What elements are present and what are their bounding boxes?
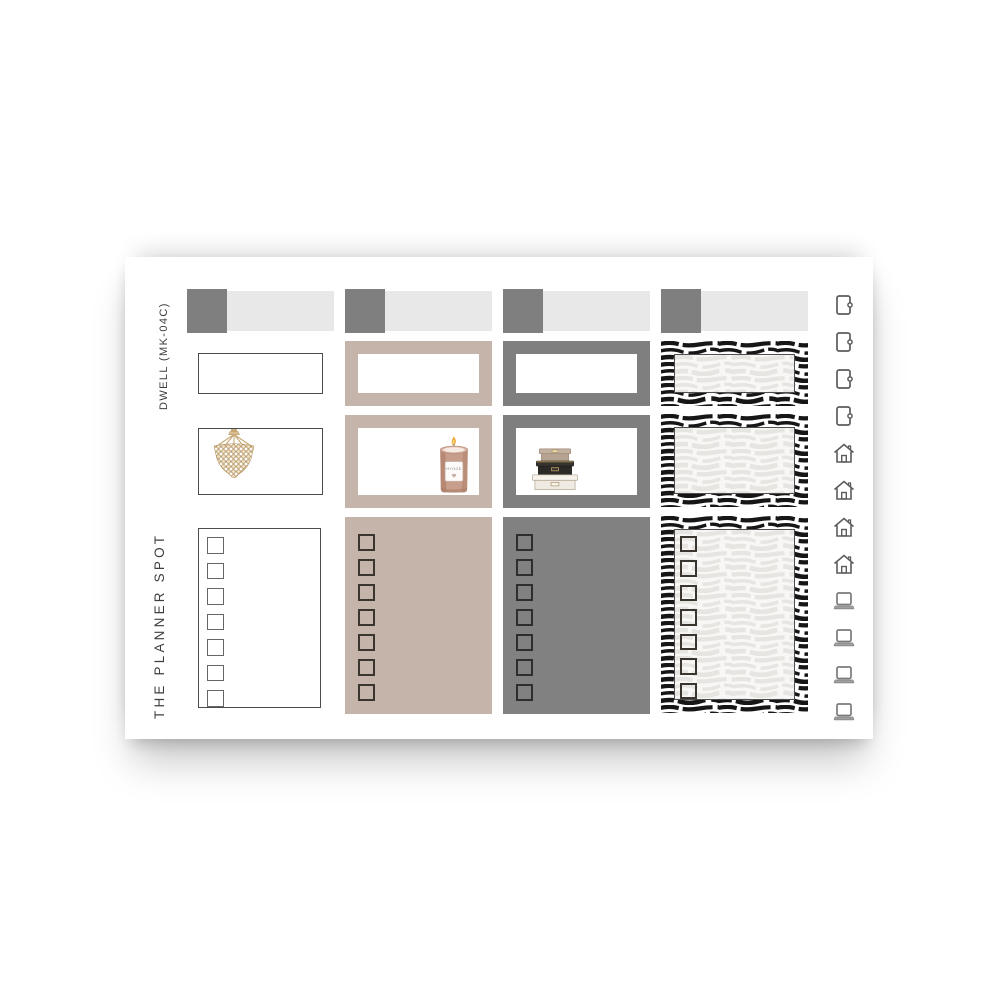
checkbox (207, 665, 224, 682)
header-strip (701, 291, 808, 331)
label-box-zebra (661, 341, 808, 406)
sheet-code-label: DWELL (MK-04C) (158, 269, 170, 410)
half-box-taupe: HYGGE (345, 415, 492, 508)
candle-label-text: HYGGE (446, 467, 462, 471)
checkbox (680, 634, 697, 650)
checkbox (516, 609, 533, 626)
storage-boxes-illustration (530, 444, 580, 491)
date-cover-square (503, 289, 543, 333)
house-icon (832, 441, 856, 465)
checklist-white (198, 528, 321, 708)
label-box-gray (503, 341, 650, 406)
brand-label: THE PLANNER SPOT (152, 527, 167, 719)
header-strip (385, 291, 492, 331)
checkbox (207, 537, 224, 554)
door-icon (832, 367, 856, 391)
door-icon (832, 330, 856, 354)
header-bar-sticker-col1 (187, 289, 334, 333)
faint-zebra-pattern (675, 428, 794, 493)
faint-zebra-pattern (675, 355, 794, 392)
label-box-white (198, 353, 323, 394)
laptop-icon (832, 700, 856, 724)
checkbox (680, 683, 697, 699)
product-photo-canvas: DWELL (MK-04C) THE PLANNER SPOT (0, 0, 1000, 1000)
zebra-inner-panel (674, 354, 795, 393)
date-cover-square (661, 289, 701, 333)
door-icon (832, 404, 856, 428)
header-strip (543, 291, 650, 331)
house-icon (832, 515, 856, 539)
chandelier-illustration (211, 429, 257, 479)
zebra-inner-panel (674, 529, 795, 700)
checklist-taupe (345, 517, 492, 714)
checkbox (358, 659, 375, 676)
checkbox (680, 658, 697, 674)
sticker-sheet: DWELL (MK-04C) THE PLANNER SPOT (125, 257, 873, 739)
header-bar-sticker-col2 (345, 289, 492, 333)
date-cover-square (187, 289, 227, 333)
checkbox (516, 684, 533, 701)
checkbox (358, 634, 375, 651)
house-icon (832, 478, 856, 502)
checkbox (516, 659, 533, 676)
checkbox (358, 534, 375, 551)
checklist-zebra (661, 516, 808, 713)
label-box-taupe (345, 341, 492, 406)
checkbox (358, 684, 375, 701)
checkbox (207, 588, 224, 605)
house-icon (832, 552, 856, 576)
checkbox (358, 609, 375, 626)
checkbox (207, 690, 224, 707)
checkbox (207, 639, 224, 656)
header-bar-sticker-col3 (503, 289, 650, 333)
hygge-candle-illustration: HYGGE (437, 436, 471, 495)
checkbox (516, 559, 533, 576)
laptop-icon (832, 663, 856, 687)
laptop-icon (832, 626, 856, 650)
date-cover-square (345, 289, 385, 333)
checkbox (516, 534, 533, 551)
checkbox (680, 609, 697, 625)
checkbox (680, 536, 697, 552)
checklist-gray (503, 517, 650, 714)
half-box-white (198, 428, 323, 495)
checkbox (516, 584, 533, 601)
half-box-gray (503, 415, 650, 508)
checkbox (680, 585, 697, 601)
checkbox (358, 559, 375, 576)
mini-icon-strip (832, 293, 856, 724)
header-bar-sticker-col4 (661, 289, 808, 333)
checkbox (207, 614, 224, 631)
header-strip (227, 291, 334, 331)
checkbox (516, 634, 533, 651)
zebra-inner-panel (674, 427, 795, 494)
laptop-icon (832, 589, 856, 613)
checkbox (680, 560, 697, 576)
checkbox (358, 584, 375, 601)
checkbox (207, 563, 224, 580)
door-icon (832, 293, 856, 317)
zebra-checkbox-column (675, 530, 794, 699)
half-box-zebra (661, 414, 808, 507)
